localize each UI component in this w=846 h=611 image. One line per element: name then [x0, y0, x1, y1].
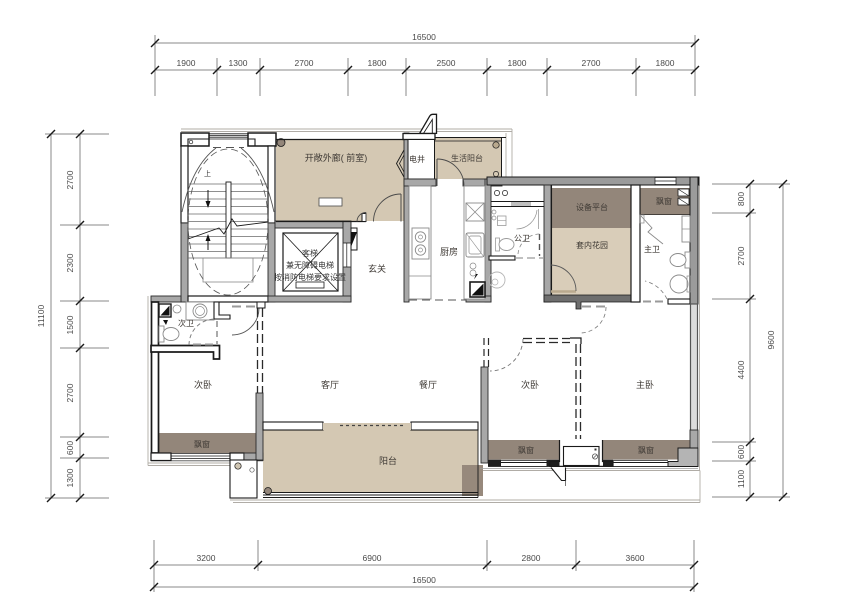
- svg-text:1300: 1300: [229, 58, 248, 68]
- svg-text:2700: 2700: [295, 58, 314, 68]
- svg-text:兼无障碍电梯: 兼无障碍电梯: [286, 260, 334, 270]
- svg-text:800: 800: [736, 192, 746, 206]
- svg-text:按消防电梯要求设置: 按消防电梯要求设置: [274, 272, 346, 282]
- svg-text:主卧: 主卧: [636, 379, 654, 390]
- svg-text:阳台: 阳台: [379, 455, 397, 466]
- svg-text:次卫: 次卫: [178, 318, 194, 328]
- svg-text:生活阳台: 生活阳台: [451, 153, 483, 163]
- svg-text:餐厅: 餐厅: [419, 379, 437, 390]
- svg-text:1500: 1500: [65, 315, 75, 334]
- svg-text:11100: 11100: [36, 305, 46, 328]
- svg-text:16500: 16500: [412, 575, 436, 585]
- svg-text:2300: 2300: [65, 253, 75, 272]
- svg-text:2800: 2800: [522, 553, 541, 563]
- svg-text:设备平台: 设备平台: [576, 202, 608, 212]
- svg-text:玄关: 玄关: [368, 263, 386, 274]
- svg-text:套内花园: 套内花园: [576, 240, 608, 250]
- svg-text:3600: 3600: [626, 553, 645, 563]
- svg-text:4400: 4400: [736, 360, 746, 379]
- svg-text:2700: 2700: [65, 170, 75, 189]
- svg-text:6900: 6900: [363, 553, 382, 563]
- svg-text:2500: 2500: [437, 58, 456, 68]
- svg-text:1800: 1800: [508, 58, 527, 68]
- svg-text:1300: 1300: [65, 468, 75, 487]
- svg-text:飘窗: 飘窗: [638, 445, 654, 455]
- svg-text:600: 600: [65, 441, 75, 455]
- svg-text:16500: 16500: [412, 32, 436, 42]
- svg-text:1900: 1900: [177, 58, 196, 68]
- svg-text:飘窗: 飘窗: [518, 445, 534, 455]
- svg-text:上: 上: [204, 169, 211, 178]
- svg-text:2700: 2700: [65, 383, 75, 402]
- svg-text:1800: 1800: [368, 58, 387, 68]
- svg-text:厨房: 厨房: [440, 246, 458, 257]
- svg-text:飘窗: 飘窗: [194, 439, 210, 449]
- svg-text:2700: 2700: [582, 58, 601, 68]
- svg-text:开敞外廊( 前室): 开敞外廊( 前室): [305, 152, 368, 163]
- svg-text:1100: 1100: [736, 470, 746, 489]
- svg-text:主卫: 主卫: [644, 244, 660, 254]
- svg-text:客梯: 客梯: [302, 248, 318, 258]
- svg-text:飘窗: 飘窗: [656, 196, 672, 206]
- svg-text:600: 600: [736, 445, 746, 459]
- svg-text:9600: 9600: [766, 330, 776, 349]
- svg-text:次卧: 次卧: [521, 379, 539, 390]
- svg-text:1800: 1800: [656, 58, 675, 68]
- svg-text:次卧: 次卧: [194, 379, 212, 390]
- svg-text:客厅: 客厅: [321, 379, 339, 390]
- svg-text:2700: 2700: [736, 246, 746, 265]
- svg-text:3200: 3200: [197, 553, 216, 563]
- svg-text:公卫: 公卫: [514, 234, 530, 243]
- svg-text:电井: 电井: [409, 154, 425, 164]
